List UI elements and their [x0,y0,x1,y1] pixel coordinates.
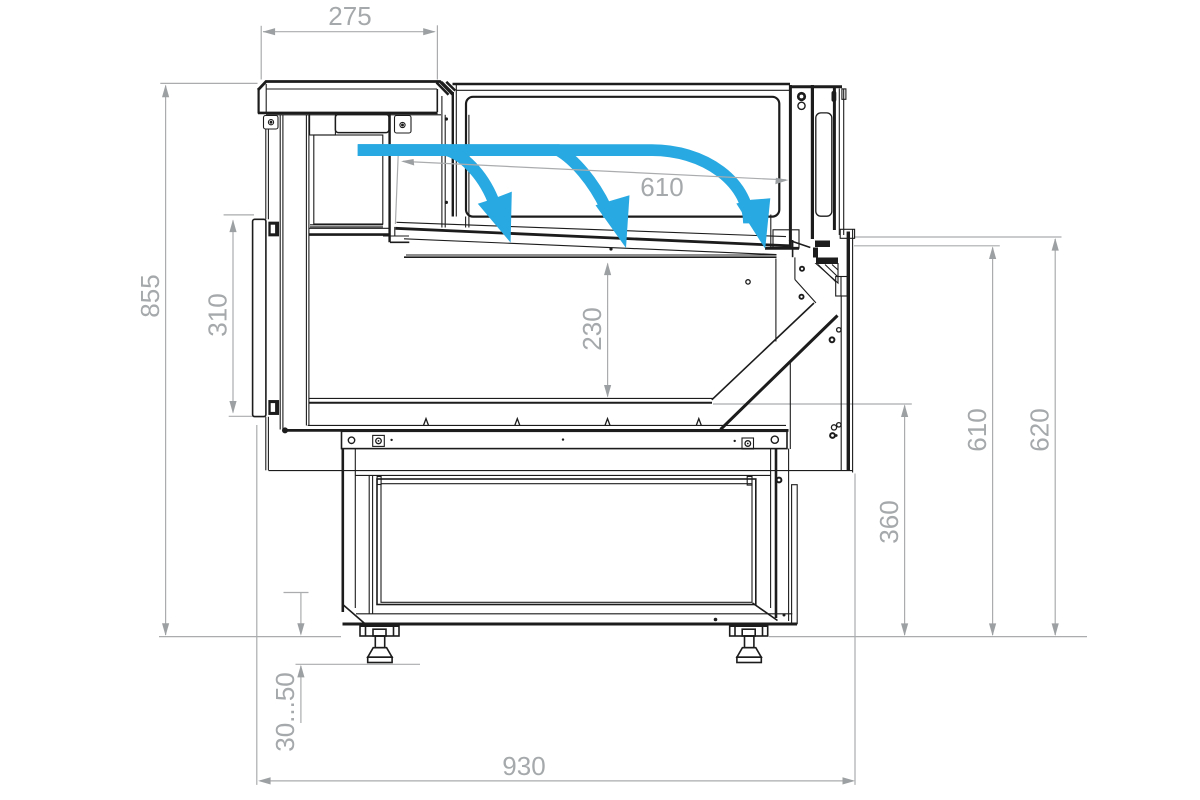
svg-text:360: 360 [874,500,904,543]
svg-text:855: 855 [135,274,165,317]
svg-text:230: 230 [577,307,607,350]
svg-text:620: 620 [1025,408,1055,451]
svg-text:275: 275 [328,1,371,31]
svg-text:610: 610 [962,408,992,451]
svg-text:30...50: 30...50 [270,672,300,752]
svg-text:930: 930 [502,751,545,781]
svg-text:610: 610 [640,172,683,202]
svg-text:310: 310 [203,293,233,336]
